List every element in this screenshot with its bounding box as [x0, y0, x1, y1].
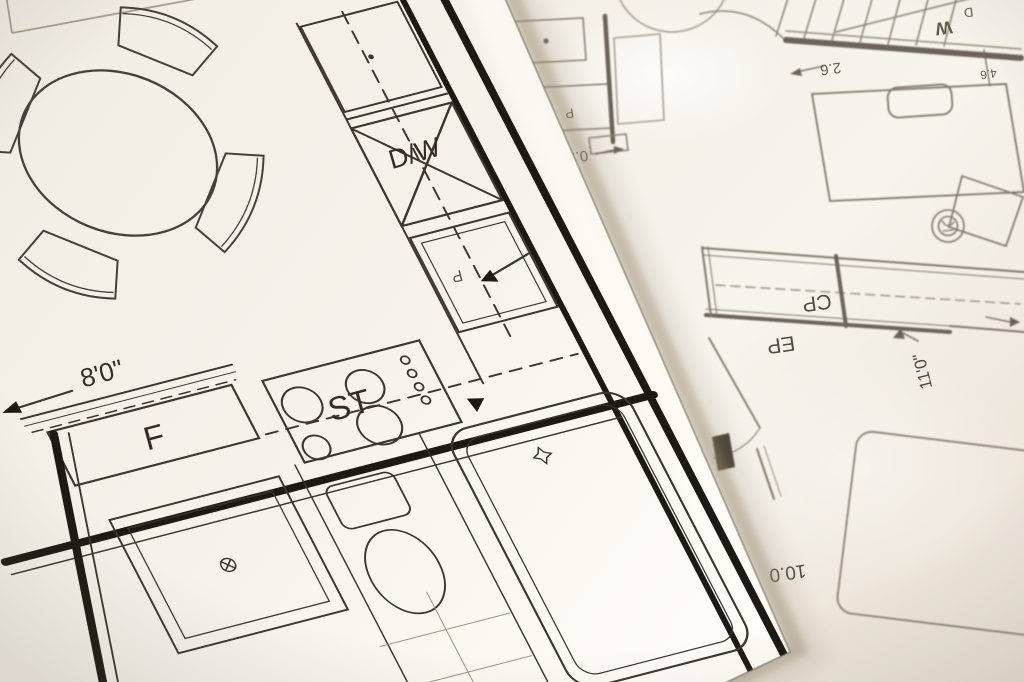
- blueprint-photo: W D 2.6 4.6 0.9 P CP EP 11'0" 10.0: [0, 0, 1024, 682]
- blueprint-scene: W D 2.6 4.6 0.9 P CP EP 11'0" 10.0: [0, 0, 1024, 682]
- vignette: [0, 0, 1024, 682]
